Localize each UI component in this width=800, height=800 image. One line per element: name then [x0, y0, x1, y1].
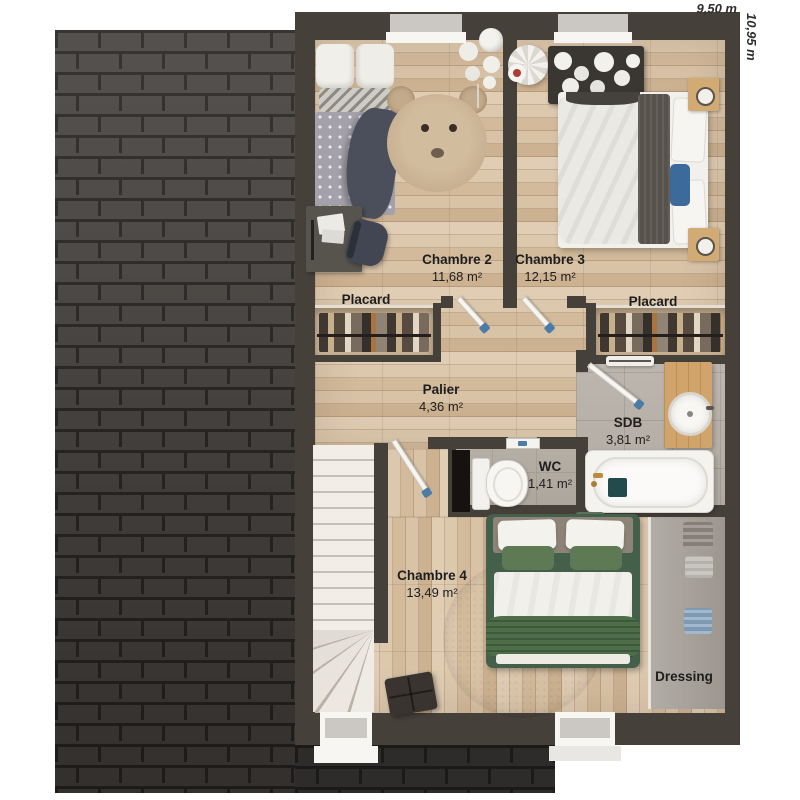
sink-tap [706, 406, 714, 410]
hanging-clothes [600, 313, 721, 352]
red-dot [513, 69, 521, 77]
toilet-bowl [486, 460, 528, 507]
window-bottom-left-outer-sill [314, 746, 378, 763]
bath-faucet-knob [591, 481, 597, 487]
window-top-right-sill [554, 32, 632, 43]
bath-mat [608, 478, 627, 497]
room-name: Chambre 4 [397, 568, 467, 585]
green-throw [486, 616, 640, 658]
wall-pier-chambre4-door [428, 437, 456, 449]
room-area: 4,36 m² [419, 399, 463, 415]
pompom [459, 42, 478, 61]
nightstand-top [688, 78, 719, 111]
dimension-height-label: 10,95 m [744, 13, 759, 61]
hanging-clothes [319, 313, 429, 352]
room-area: 11,68 m² [422, 269, 492, 285]
gray-throw [638, 94, 670, 244]
room-name: Chambre 3 [515, 252, 585, 269]
garland-stem [477, 84, 479, 108]
room-name: WC [528, 459, 572, 476]
green-pillow [570, 546, 622, 570]
bath-faucet [593, 473, 603, 478]
wall-wc-top-right [537, 437, 588, 449]
wall-wc-top-left [448, 437, 508, 449]
floor-plan-image: Chambre 2 11,68 m² Chambre 3 12,15 m² Pl… [0, 0, 800, 800]
bed-chambre-3 [558, 92, 708, 248]
window-top-left [390, 14, 462, 34]
wall-bedroom-south-right [567, 296, 586, 308]
nightstand-bottom [688, 228, 719, 261]
bear-nose [431, 148, 444, 158]
room-name: SDB [606, 415, 650, 432]
clock [696, 237, 715, 256]
room-name: Placard [629, 294, 678, 311]
room-area: 12,15 m² [515, 269, 585, 285]
window-bottom-right-outer-sill [549, 746, 621, 761]
room-label-dressing: Dressing [655, 669, 713, 686]
clothes-pile-gray [683, 522, 713, 549]
window-top-right [558, 14, 628, 34]
window-bottom-left-glass [325, 718, 367, 738]
headboard-cushion [356, 44, 394, 88]
room-label-wc: WC 1,41 m² [528, 459, 572, 492]
pompom [465, 66, 480, 81]
room-name: Dressing [655, 669, 713, 686]
blue-pillow [670, 164, 690, 206]
room-name: Palier [419, 382, 463, 399]
room-name: Placard [342, 292, 391, 309]
plush-toy [594, 52, 614, 72]
outer-wall-left [295, 12, 315, 745]
bathtub [585, 450, 714, 513]
room-area: 13,49 m² [397, 585, 467, 601]
toilet-seat [493, 467, 523, 502]
room-label-chambre-2: Chambre 2 11,68 m² [422, 252, 492, 285]
door-handle [518, 441, 527, 446]
pompom [483, 76, 496, 89]
rail-bar [609, 360, 651, 362]
sink-basin [668, 392, 712, 436]
wall-placard-right-cap [586, 303, 596, 353]
desk-edge [311, 220, 314, 260]
duvet-foot [496, 654, 630, 664]
towel-rail [606, 356, 654, 366]
stair-winders [313, 630, 374, 712]
green-pillow [502, 546, 554, 570]
room-label-palier: Palier 4,36 m² [419, 382, 463, 415]
wall-stair-side [374, 443, 388, 643]
room-area: 1,41 m² [528, 476, 572, 492]
bear-head [387, 94, 487, 192]
pompom [479, 28, 503, 52]
plush-toy [626, 54, 640, 68]
wardrobe-rod [598, 334, 723, 337]
wall-bedroom-south-left [441, 296, 453, 308]
window-bottom-right-glass [560, 718, 610, 738]
room-area: 3,81 m² [606, 432, 650, 448]
wall-sdb-left-top [576, 350, 588, 372]
plush-toy [574, 66, 589, 81]
room-label-placard-left: Placard [342, 292, 391, 309]
room-label-sdb: SDB 3,81 m² [606, 415, 650, 448]
staircase [313, 445, 374, 712]
door-wc [506, 438, 540, 449]
stair-treads [313, 445, 374, 630]
papers [321, 229, 344, 244]
bear-eye [421, 124, 429, 132]
headboard-cushion [316, 44, 354, 88]
roof-tiles-left [55, 30, 295, 793]
room-label-chambre-4: Chambre 4 13,49 m² [397, 568, 467, 601]
dimension-width-label: 9,50 m [697, 1, 737, 16]
room-label-placard-right: Placard [629, 294, 678, 311]
outer-wall-right [725, 12, 740, 745]
outer-wall-top [300, 12, 740, 40]
drain [687, 411, 693, 417]
plush-toy [614, 70, 630, 86]
wardrobe-right [596, 305, 725, 355]
window-top-left-sill [386, 32, 466, 43]
bear-eye [449, 124, 457, 132]
clothes-pile-light [685, 556, 713, 578]
plush-ball-red [508, 64, 526, 82]
plush-toy [554, 52, 572, 70]
room-name: Chambre 2 [422, 252, 492, 269]
bed-chambre-4 [486, 514, 640, 668]
clothes-pile-blue [684, 608, 712, 634]
wc-cabinet [452, 450, 470, 512]
duvet-fold-dark [566, 92, 640, 105]
wardrobe-left [315, 305, 433, 355]
dressing-divider-line [648, 517, 651, 709]
room-label-chambre-3: Chambre 3 12,15 m² [515, 252, 585, 285]
pompom [483, 56, 500, 73]
wardrobe-rod [317, 334, 431, 337]
clock [696, 87, 715, 106]
wall-placard-left-cap [433, 303, 441, 353]
